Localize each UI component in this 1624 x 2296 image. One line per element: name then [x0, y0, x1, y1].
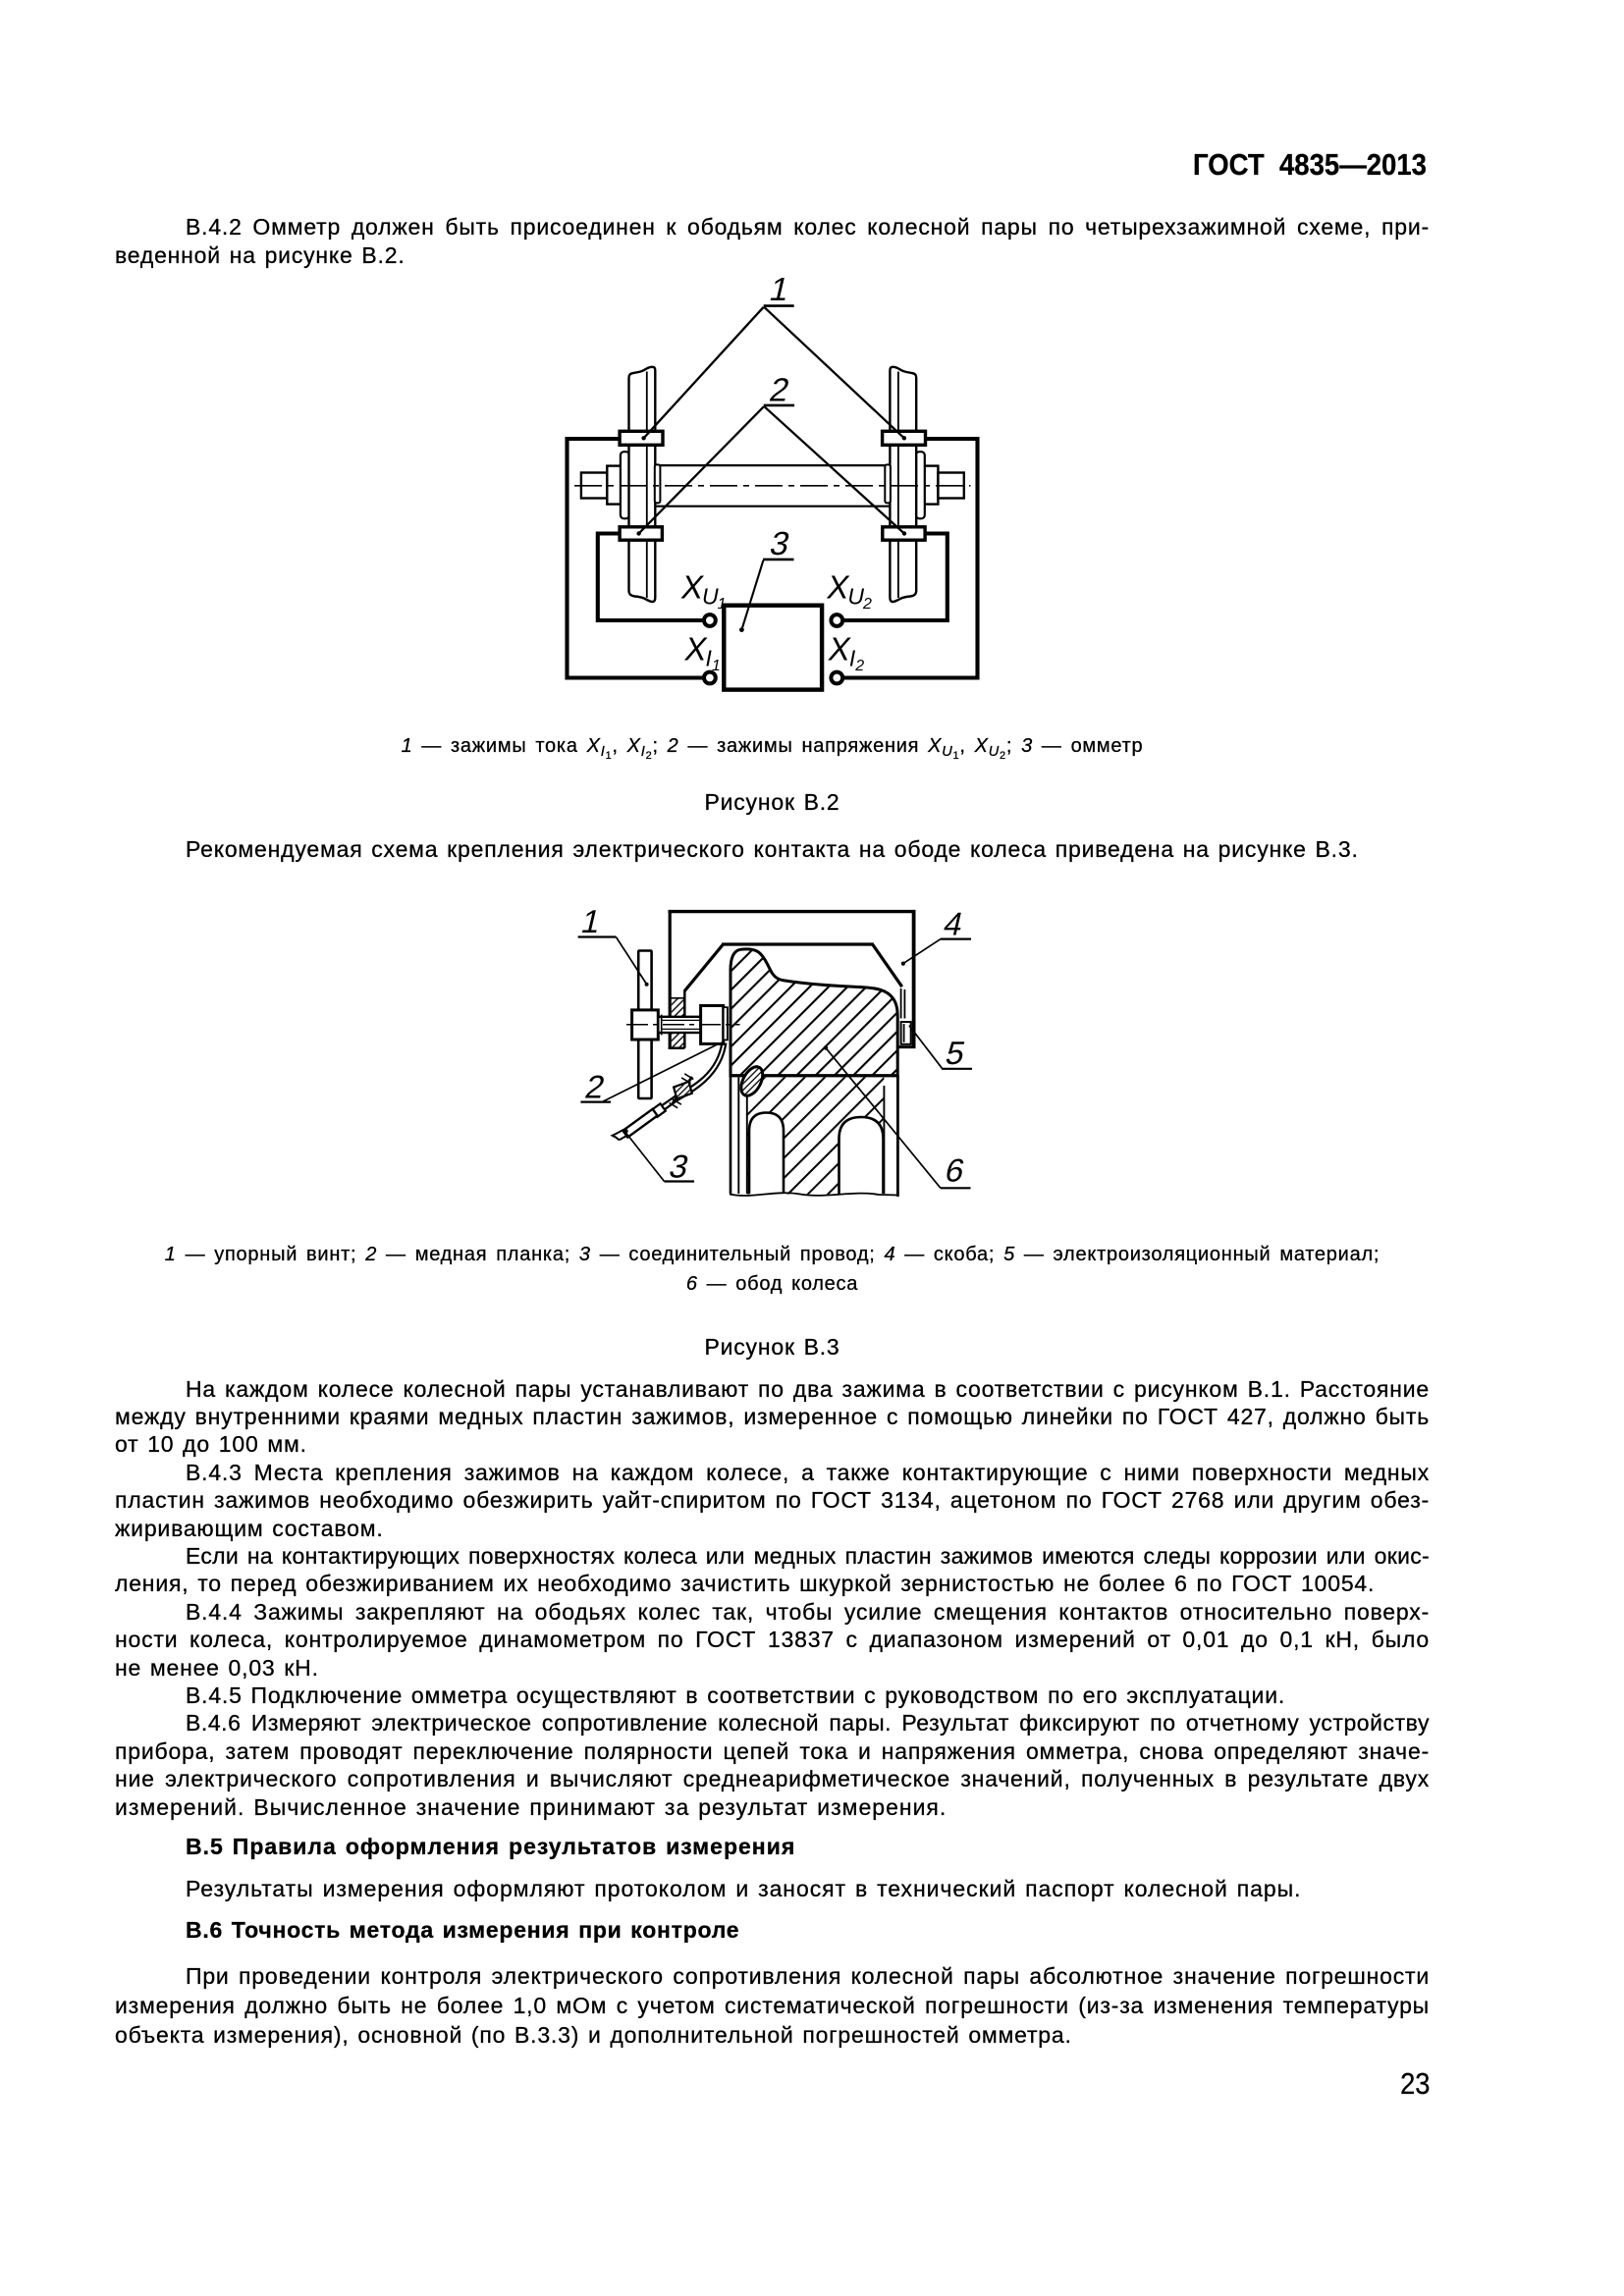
svg-text:1: 1 — [578, 904, 605, 940]
svg-text:4: 4 — [941, 907, 967, 943]
svg-text:XI1: XI1 — [684, 631, 721, 675]
svg-text:5: 5 — [943, 1036, 969, 1072]
svg-text:XU2: XU2 — [826, 569, 872, 614]
svg-text:3: 3 — [767, 525, 793, 562]
svg-text:1: 1 — [766, 272, 792, 309]
svg-text:6: 6 — [942, 1153, 968, 1190]
svg-text:XU1: XU1 — [680, 569, 727, 614]
svg-text:XI2: XI2 — [828, 631, 864, 675]
svg-text:3: 3 — [666, 1149, 692, 1186]
svg-text:2: 2 — [766, 372, 792, 409]
